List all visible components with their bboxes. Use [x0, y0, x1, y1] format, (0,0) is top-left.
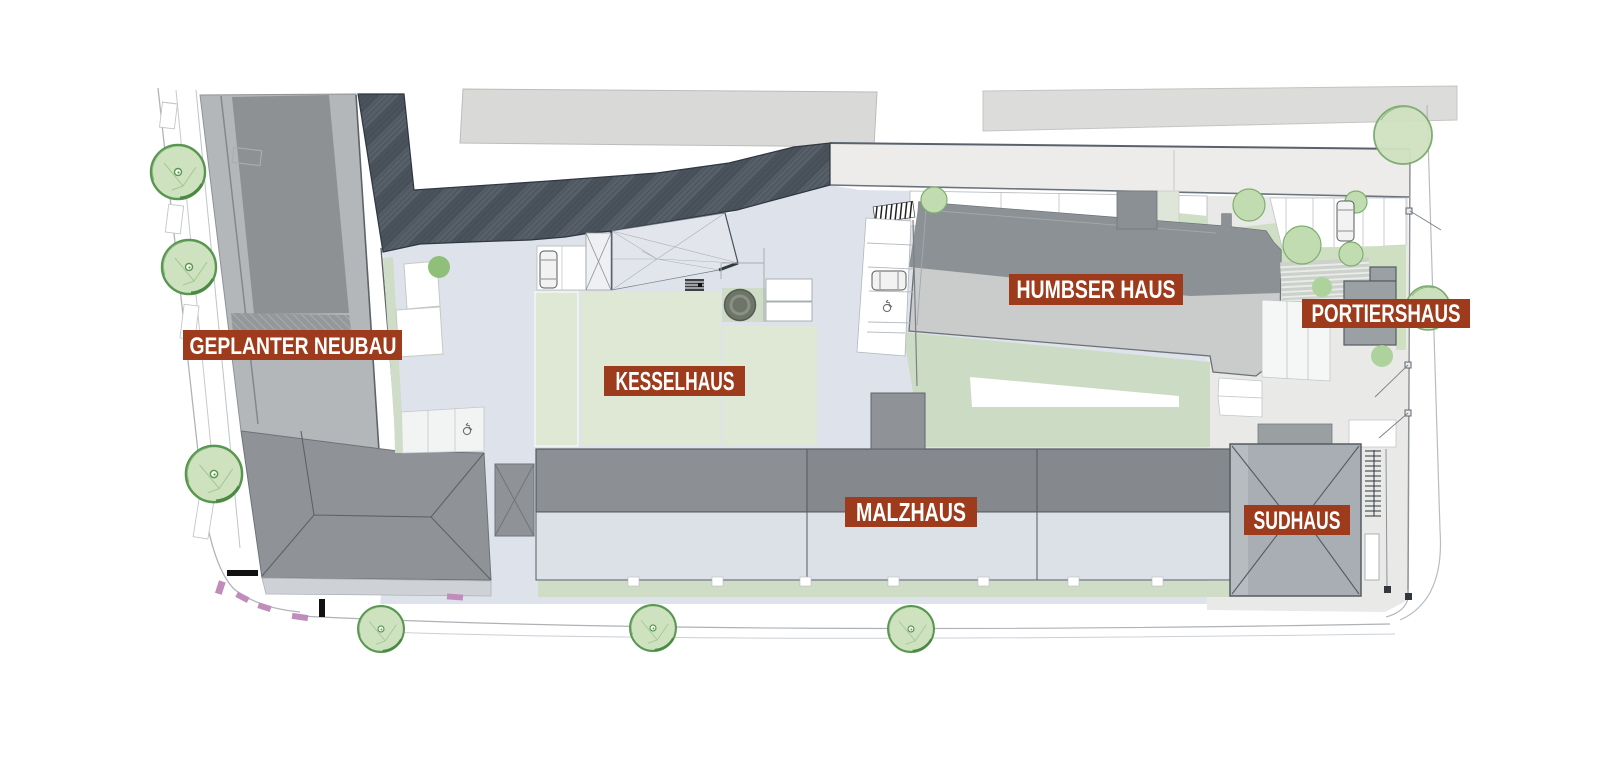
svg-text:PORTIERSHAUS: PORTIERSHAUS: [1312, 300, 1461, 328]
svg-text:MALZHAUS: MALZHAUS: [856, 497, 966, 527]
svg-text:KESSELHAUS: KESSELHAUS: [616, 366, 735, 396]
svg-text:SUDHAUS: SUDHAUS: [1254, 507, 1341, 535]
svg-text:HUMBSER HAUS: HUMBSER HAUS: [1017, 276, 1176, 304]
svg-text:GEPLANTER NEUBAU: GEPLANTER NEUBAU: [190, 333, 397, 360]
